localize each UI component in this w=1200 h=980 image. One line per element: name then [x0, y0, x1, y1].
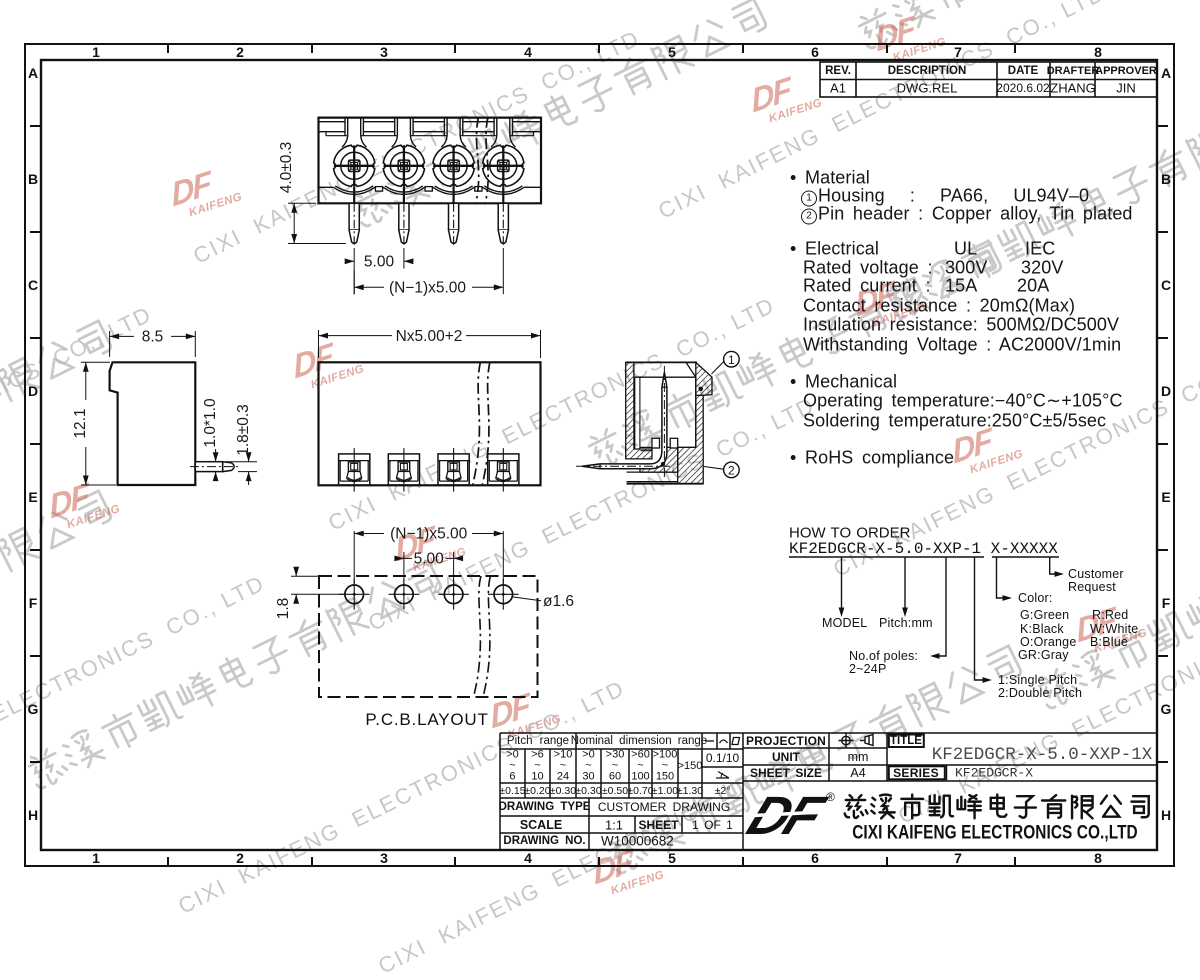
svg-text:5.00: 5.00 — [364, 254, 395, 271]
svg-text:ø1.6: ø1.6 — [543, 593, 574, 610]
svg-text:®: ® — [826, 790, 835, 804]
svg-text:1.8±0.3: 1.8±0.3 — [235, 404, 252, 456]
svg-text:1.0*1.0: 1.0*1.0 — [202, 398, 219, 448]
svg-text:8.5: 8.5 — [142, 329, 164, 346]
svg-text:2: 2 — [728, 464, 735, 478]
svg-text:(N−1)x5.00: (N−1)x5.00 — [389, 280, 466, 297]
svg-text:(N−1)x5.00: (N−1)x5.00 — [390, 526, 467, 543]
svg-text:12.1: 12.1 — [72, 408, 89, 438]
svg-text:1: 1 — [728, 353, 735, 367]
svg-text:5.00: 5.00 — [414, 551, 445, 568]
svg-text:1.8: 1.8 — [275, 598, 292, 620]
svg-text:Nx5.00+2: Nx5.00+2 — [396, 328, 463, 345]
svg-text:4.0±0.3: 4.0±0.3 — [278, 142, 295, 194]
